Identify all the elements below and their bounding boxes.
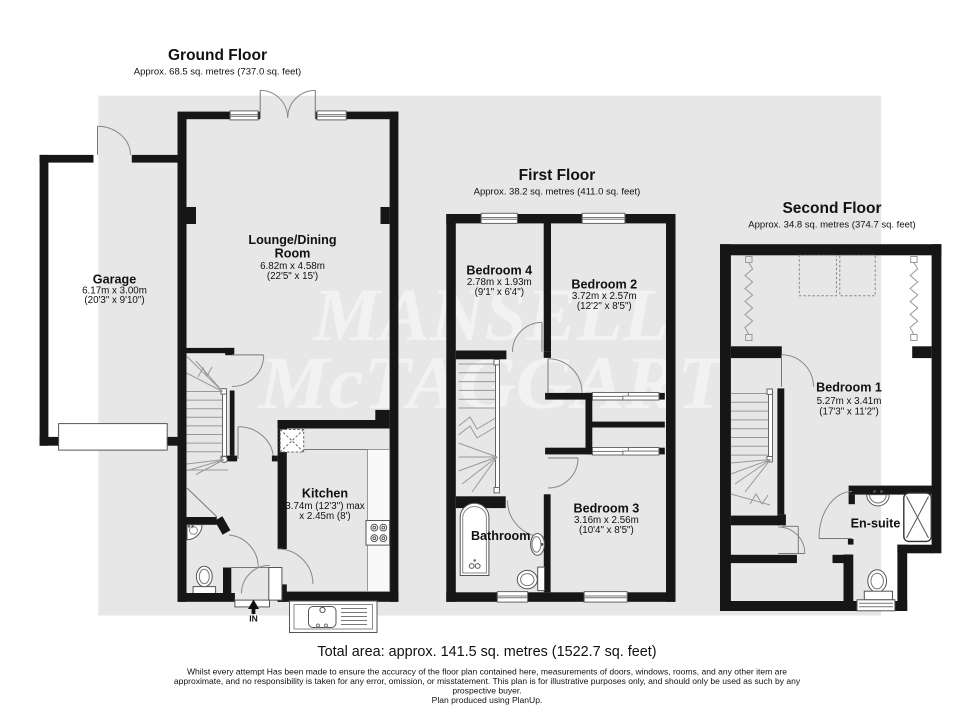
svg-text:(10'4" x 8'5"): (10'4" x 8'5")	[579, 525, 634, 536]
svg-text:5.27m x 3.41m: 5.27m x 3.41m	[817, 396, 882, 407]
svg-text:Kitchen: Kitchen	[302, 487, 348, 501]
svg-text:Total area: approx. 141.5 sq.: Total area: approx. 141.5 sq. metres (15…	[317, 644, 656, 660]
svg-text:Plan produced using PlanUp.: Plan produced using PlanUp.	[432, 695, 543, 705]
svg-text:(20'3" x 9'10"): (20'3" x 9'10")	[84, 295, 144, 306]
svg-text:Bedroom 3: Bedroom 3	[574, 502, 640, 516]
svg-text:Approx. 38.2 sq. metres (411.0: Approx. 38.2 sq. metres (411.0 sq. feet)	[474, 187, 641, 198]
svg-text:(17'3" x 11'2"): (17'3" x 11'2")	[819, 407, 879, 418]
svg-text:(22'5" x 15'): (22'5" x 15')	[267, 271, 318, 282]
svg-text:First Floor: First Floor	[519, 167, 596, 184]
svg-text:Approx. 68.5 sq. metres (737.0: Approx. 68.5 sq. metres (737.0 sq. feet)	[134, 67, 301, 78]
svg-text:Approx. 34.8 sq. metres (374.7: Approx. 34.8 sq. metres (374.7 sq. feet)	[748, 220, 915, 231]
svg-text:Bedroom 4: Bedroom 4	[466, 264, 532, 278]
svg-text:Garage: Garage	[93, 273, 136, 287]
svg-text:Bedroom 1: Bedroom 1	[816, 381, 882, 395]
svg-text:Ground Floor: Ground Floor	[168, 47, 267, 64]
svg-text:Room: Room	[275, 247, 311, 261]
svg-text:x 2.45m (8'): x 2.45m (8')	[299, 511, 350, 522]
svg-text:Whilst every attempt Has been: Whilst every attempt Has been made to en…	[187, 667, 787, 677]
svg-text:Bedroom 2: Bedroom 2	[571, 278, 637, 292]
svg-text:IN: IN	[249, 614, 258, 624]
svg-text:Second Floor: Second Floor	[782, 200, 881, 217]
svg-text:(12'2" x 8'5"): (12'2" x 8'5")	[577, 301, 632, 312]
svg-text:Bathroom: Bathroom	[471, 529, 530, 543]
svg-text:En-suite: En-suite	[851, 517, 901, 531]
svg-text:(9'1" x 6'4"): (9'1" x 6'4")	[475, 287, 524, 298]
svg-text:Lounge/Dining: Lounge/Dining	[248, 233, 336, 247]
